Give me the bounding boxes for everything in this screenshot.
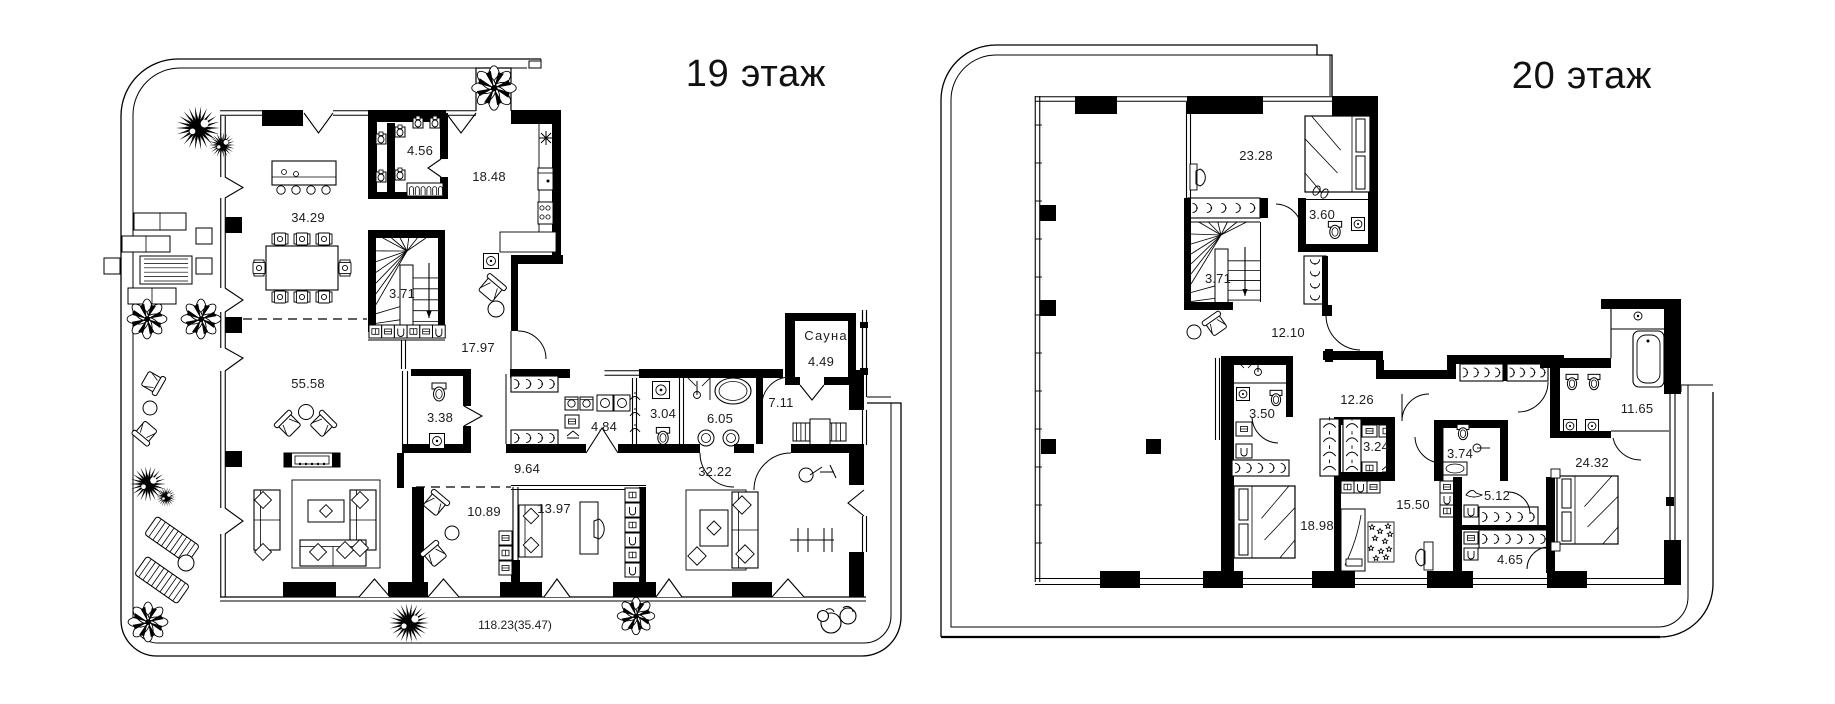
svg-text:3.24: 3.24 [1363, 439, 1389, 454]
svg-text:3.50: 3.50 [1249, 406, 1275, 421]
svg-text:118.23(35.47): 118.23(35.47) [478, 618, 552, 632]
svg-text:4.49: 4.49 [808, 354, 834, 369]
svg-text:6.05: 6.05 [707, 411, 733, 426]
svg-text:34.29: 34.29 [291, 210, 325, 225]
svg-text:12.10: 12.10 [1271, 325, 1305, 340]
svg-text:3.74: 3.74 [1447, 446, 1473, 461]
svg-text:20 этаж: 20 этаж [1512, 55, 1653, 97]
svg-text:18.98: 18.98 [1300, 518, 1334, 533]
svg-text:4.65: 4.65 [1497, 552, 1523, 567]
svg-text:15.50: 15.50 [1396, 497, 1430, 512]
svg-text:3.60: 3.60 [1309, 207, 1335, 222]
svg-text:9.64: 9.64 [514, 461, 540, 476]
svg-text:4.84: 4.84 [591, 419, 617, 434]
svg-text:3.04: 3.04 [650, 406, 676, 421]
svg-text:19 этаж: 19 этаж [686, 53, 827, 95]
svg-text:3.71: 3.71 [389, 286, 415, 301]
svg-text:24.32: 24.32 [1575, 455, 1609, 470]
svg-text:Сауна: Сауна [804, 328, 848, 343]
svg-text:10.89: 10.89 [467, 504, 501, 519]
svg-text:12.26: 12.26 [1340, 392, 1374, 407]
svg-text:7.11: 7.11 [768, 395, 793, 410]
svg-text:55.58: 55.58 [291, 376, 325, 391]
svg-text:3.71: 3.71 [1205, 271, 1231, 286]
svg-text:4.56: 4.56 [407, 143, 433, 158]
svg-text:11.65: 11.65 [1621, 401, 1654, 416]
svg-text:3.38: 3.38 [427, 410, 453, 425]
svg-text:18.48: 18.48 [472, 169, 506, 184]
svg-text:13.97: 13.97 [537, 501, 571, 516]
svg-text:32.22: 32.22 [698, 464, 732, 479]
svg-text:23.28: 23.28 [1239, 148, 1273, 163]
svg-text:17.97: 17.97 [461, 340, 495, 355]
svg-text:5.12: 5.12 [1484, 488, 1510, 503]
